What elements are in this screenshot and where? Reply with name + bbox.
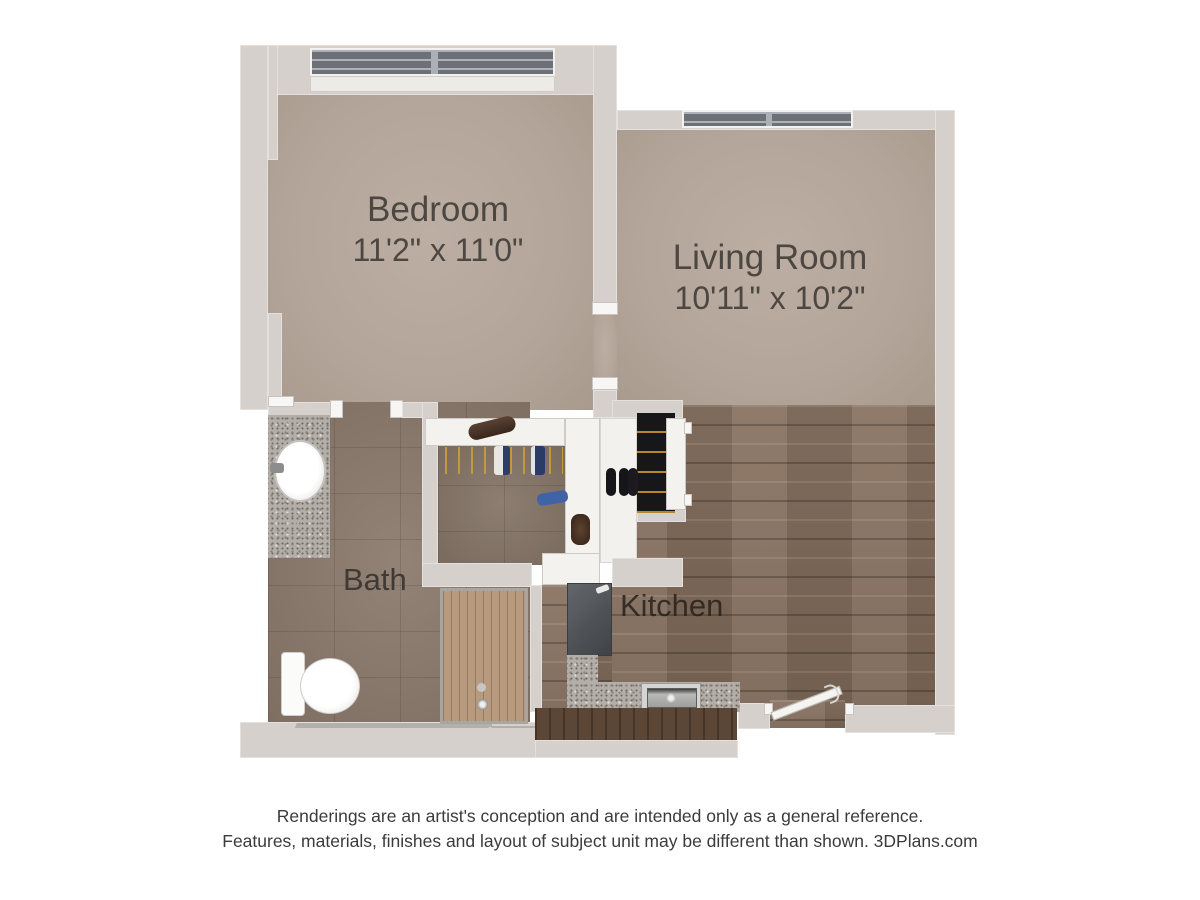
kitchen-sink — [641, 683, 701, 710]
range-appliance — [567, 583, 612, 656]
wardrobe-door-hinge-top — [684, 422, 692, 434]
disclaimer: Renderings are an artist's conception an… — [0, 804, 1200, 854]
hanging-garment-white — [494, 446, 510, 475]
shoe — [606, 468, 616, 496]
base-cabinets — [535, 708, 737, 740]
shower-drain — [477, 699, 488, 710]
bottom-right-wall — [845, 705, 955, 733]
bedroom-label: Bedroom 11'2" x 11'0" — [288, 190, 588, 269]
shoe — [628, 468, 638, 496]
living-room-label: Living Room 10'11" x 10'2" — [620, 238, 920, 317]
right-outer-wall — [935, 110, 955, 735]
living-room-name: Living Room — [620, 238, 920, 278]
living-room-dimensions: 10'11" x 10'2" — [620, 280, 920, 317]
bedroom-window-sill — [310, 76, 555, 92]
bath-bottom-wall — [240, 722, 540, 758]
wardrobe-door — [666, 418, 686, 510]
disclaimer-line-2: Features, materials, finishes and layout… — [0, 829, 1200, 854]
closet-shelf-corner — [542, 553, 600, 585]
bath-label: Bath — [343, 562, 407, 598]
bedroom-living-wall-upper — [593, 45, 617, 310]
toilet-bowl — [300, 658, 360, 714]
shoes-pair-2 — [622, 468, 646, 496]
bedroom-dimensions: 11'2" x 11'0" — [288, 232, 588, 269]
bedroom-window — [310, 48, 555, 76]
entry-nook-bottom-wall — [612, 558, 683, 587]
hanging-garment-navy — [531, 446, 545, 475]
bedroom-window-mullion — [431, 50, 438, 74]
range-handle — [595, 584, 609, 594]
bedroom-left-wall — [240, 45, 268, 410]
leather-bag — [571, 514, 590, 545]
kitchen-bottom-wall — [535, 740, 738, 758]
entry-door-jamb-right — [845, 703, 854, 715]
bedroom-left-wall-upper-notch — [268, 45, 278, 160]
kitchen-label: Kitchen — [620, 588, 723, 624]
kitchen-faucet — [666, 693, 676, 703]
vanity-corner-jamb — [268, 396, 294, 407]
bath-door-jamb-left — [330, 400, 343, 418]
shower-valve — [477, 683, 486, 692]
living-room-window-mullion — [766, 112, 772, 126]
vanity-faucet — [270, 463, 284, 473]
wardrobe-door-hinge-bottom — [684, 494, 692, 506]
floor-plan-canvas: Bedroom 11'2" x 11'0" Living Room 10'11"… — [0, 0, 1200, 900]
shower — [440, 588, 528, 724]
bedroom-name: Bedroom — [288, 190, 588, 230]
bedroom-door-jamb-top — [592, 302, 618, 315]
closet-bottom-wall — [422, 563, 532, 587]
bath-kitchen-divider-wall — [530, 585, 542, 712]
disclaimer-line-1: Renderings are an artist's conception an… — [0, 804, 1200, 829]
bedroom-door-jamb-bottom — [592, 377, 618, 390]
living-room-window — [682, 110, 853, 128]
